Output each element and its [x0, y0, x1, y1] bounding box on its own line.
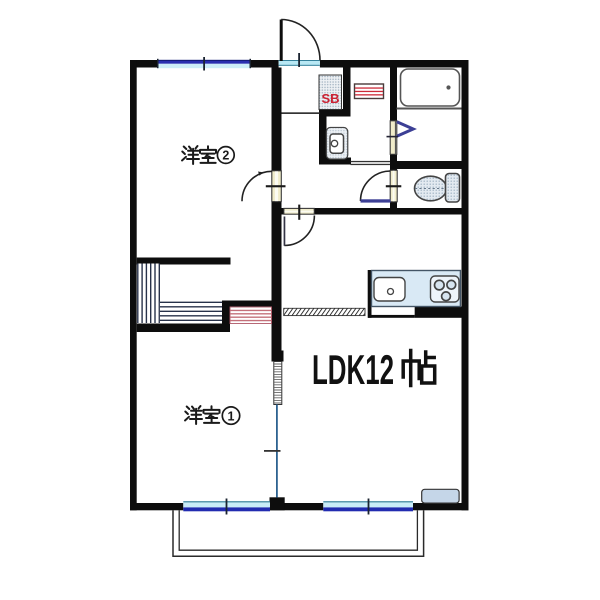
svg-text:1: 1 — [228, 409, 235, 423]
svg-text:2: 2 — [222, 149, 229, 163]
svg-text:LDK12: LDK12 — [312, 346, 394, 393]
svg-text:SB: SB — [321, 91, 339, 106]
